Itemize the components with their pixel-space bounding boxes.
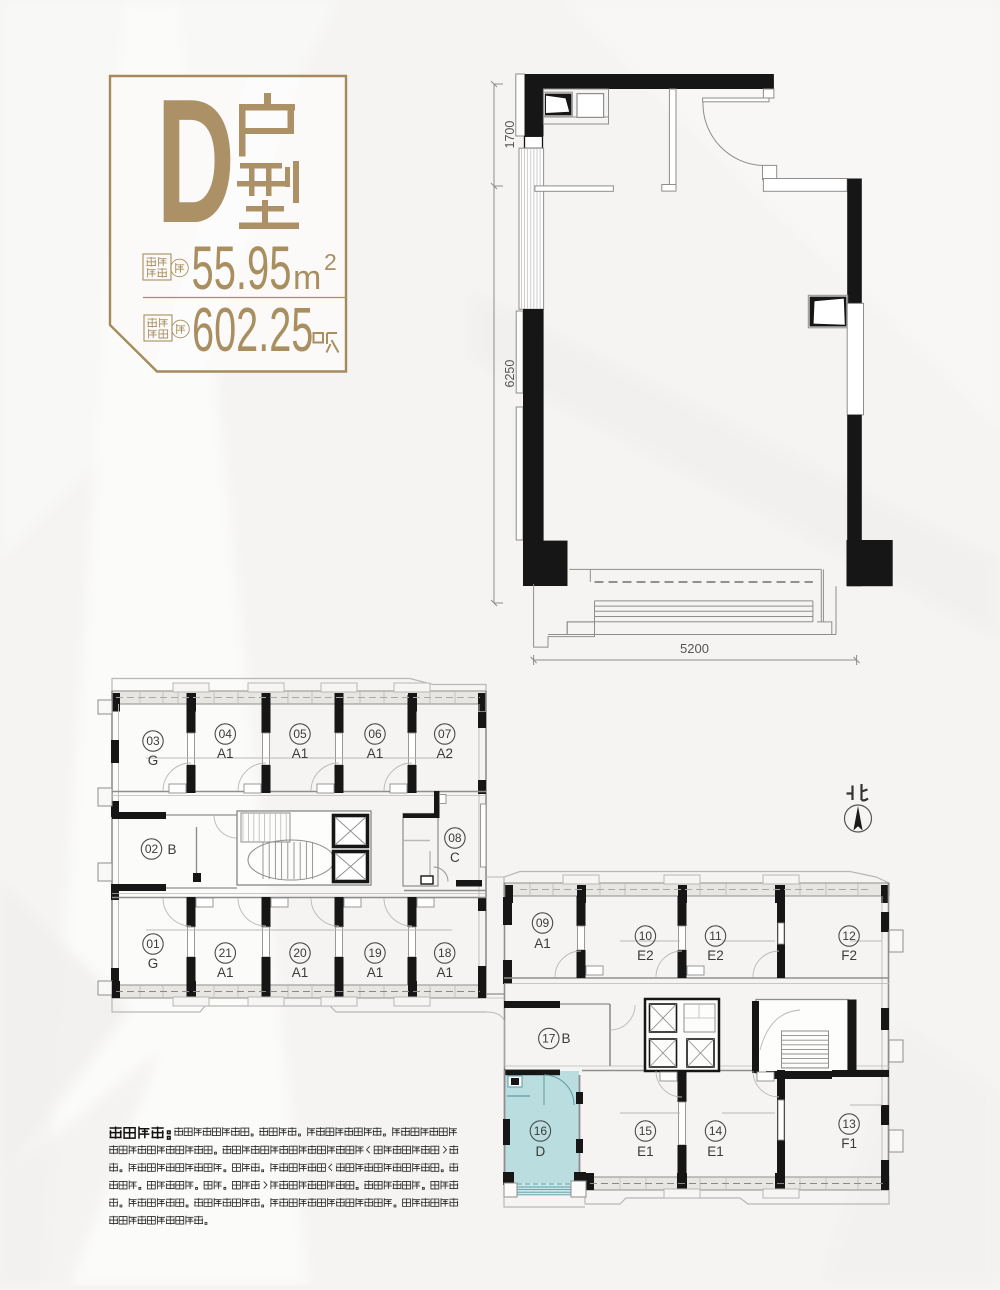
svg-text:E1: E1 (707, 1144, 724, 1159)
svg-text:20: 20 (293, 946, 307, 960)
svg-text:A1: A1 (367, 965, 384, 980)
svg-text:F1: F1 (841, 1136, 857, 1151)
svg-text:B: B (561, 1031, 570, 1046)
svg-text:07: 07 (438, 727, 452, 741)
svg-text:04: 04 (219, 727, 233, 741)
svg-text:F2: F2 (841, 948, 857, 963)
svg-text:602.25: 602.25 (192, 296, 313, 365)
svg-text:11: 11 (709, 929, 722, 943)
svg-text:02: 02 (145, 842, 159, 856)
svg-text:m: m (293, 259, 321, 297)
svg-text:2: 2 (324, 249, 337, 275)
svg-text:B: B (167, 842, 176, 857)
svg-text:15: 15 (639, 1124, 653, 1138)
svg-text:A2: A2 (436, 746, 453, 761)
svg-text:A1: A1 (217, 746, 234, 761)
svg-text:19: 19 (368, 946, 382, 960)
svg-text:C: C (450, 850, 460, 865)
svg-text:12: 12 (842, 929, 856, 943)
svg-text:21: 21 (219, 946, 233, 960)
svg-text:18: 18 (438, 946, 452, 960)
svg-text:16: 16 (534, 1124, 548, 1138)
svg-text:D: D (536, 1144, 546, 1159)
svg-text:A1: A1 (292, 746, 309, 761)
svg-text:A1: A1 (217, 965, 234, 980)
svg-text:09: 09 (536, 916, 550, 930)
svg-text:A1: A1 (292, 965, 309, 980)
svg-text:14: 14 (709, 1124, 723, 1138)
svg-text:E1: E1 (637, 1144, 654, 1159)
svg-text:06: 06 (368, 727, 382, 741)
svg-text:6250: 6250 (503, 360, 517, 388)
svg-text:13: 13 (842, 1117, 856, 1131)
svg-text:G: G (148, 753, 159, 768)
svg-text:17: 17 (542, 1032, 556, 1046)
svg-text:01: 01 (146, 937, 160, 951)
svg-text:08: 08 (448, 831, 462, 845)
svg-text:E2: E2 (707, 948, 724, 963)
svg-text:5200: 5200 (680, 641, 709, 656)
svg-text:A1: A1 (534, 936, 551, 951)
svg-text:A1: A1 (436, 965, 453, 980)
svg-text:03: 03 (146, 734, 160, 748)
svg-text:05: 05 (293, 727, 307, 741)
svg-text:G: G (148, 956, 159, 971)
svg-text:55.95: 55.95 (192, 233, 292, 302)
svg-text:10: 10 (639, 929, 653, 943)
svg-text:A1: A1 (367, 746, 384, 761)
svg-text:1700: 1700 (503, 121, 517, 149)
svg-text:D: D (156, 63, 234, 261)
svg-text:E2: E2 (637, 948, 654, 963)
